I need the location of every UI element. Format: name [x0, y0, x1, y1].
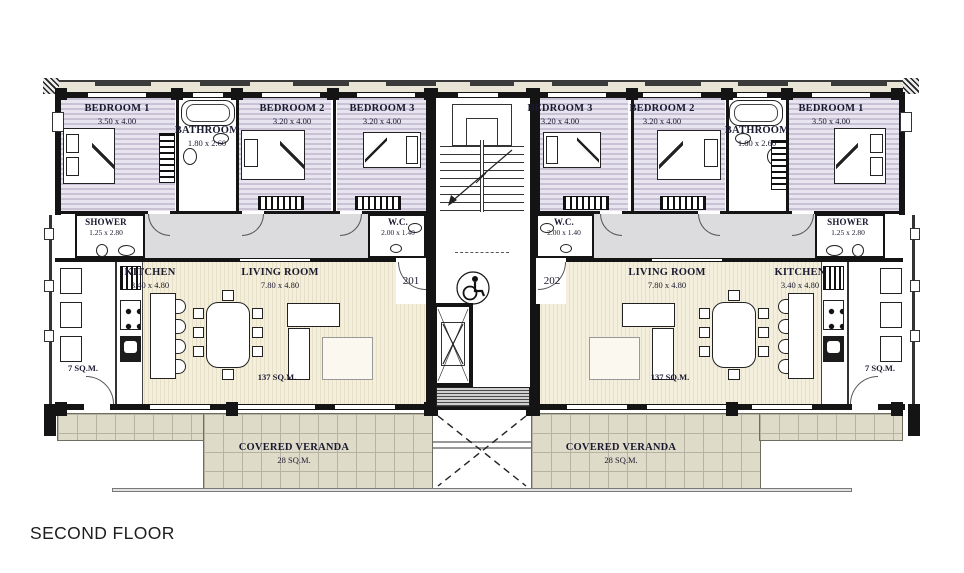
column	[726, 402, 738, 416]
door-number-202: 202	[544, 275, 561, 287]
stair-rail	[480, 140, 484, 212]
balcony-rail-left	[49, 215, 52, 404]
unit-area-left: 137 SQ.M.	[258, 372, 297, 382]
void-line	[433, 441, 531, 443]
room-label-bathroom-right: BATHROOM 1.80 x 2.60	[725, 125, 789, 148]
room-label-bedroom3-left: BEDROOM 3 3.20 x 4.00	[349, 103, 414, 126]
pillow	[406, 136, 418, 164]
room-label-wc-left: W.C. 2.00 x 1.40	[381, 217, 415, 237]
ac-unit	[880, 336, 902, 362]
room-dims: 3.40 x 4.80	[125, 280, 176, 290]
room-dims: 2.00 x 1.40	[547, 228, 581, 237]
sink	[826, 245, 843, 256]
room-name: LIVING ROOM	[241, 267, 318, 280]
room-name: SHOWER	[827, 217, 869, 228]
pillow	[704, 139, 718, 167]
chair	[252, 308, 263, 319]
wardrobe	[563, 196, 609, 210]
veranda-label-left: COVERED VERANDA 28 SQ.M.	[239, 442, 349, 465]
room-name: W.C.	[547, 217, 581, 228]
eaves-bar	[738, 82, 788, 86]
blanket-fold	[280, 131, 304, 179]
sink	[560, 244, 572, 253]
room-label-bedroom2-right: BEDROOM 2 3.20 x 4.00	[629, 103, 694, 126]
kitchen-island	[150, 293, 176, 379]
window	[262, 92, 320, 98]
veranda-name: COVERED VERANDA	[566, 442, 676, 455]
hatched-strip	[436, 387, 530, 407]
eaves-bar	[95, 82, 151, 86]
area-value: 7 SQ.M.	[68, 363, 98, 373]
area-value: 7 SQ.M.	[865, 363, 895, 373]
chair	[728, 369, 740, 380]
opening	[652, 258, 722, 262]
chair	[222, 369, 234, 380]
stove	[823, 300, 844, 330]
balcony-door-gap	[852, 404, 878, 410]
room-name: BEDROOM 2	[259, 103, 324, 116]
room-dims: 3.50 x 4.00	[84, 116, 149, 126]
wardrobe	[660, 196, 706, 210]
room-label-kitchen-right: KITCHEN 3.40 x 4.80	[775, 267, 826, 290]
floor-title: SECOND FLOOR	[30, 523, 175, 544]
window	[548, 92, 606, 98]
room-dims: 1.25 x 2.80	[85, 228, 127, 237]
unit-area-right: 137 SQ.M.	[651, 372, 690, 382]
kitchen-sink-basin	[827, 341, 840, 353]
chair	[728, 290, 740, 301]
pillow	[66, 157, 79, 176]
pillow	[870, 134, 883, 153]
kitchen-sink-basin	[124, 341, 137, 353]
sink	[183, 148, 197, 165]
column	[891, 402, 903, 416]
fridge	[823, 266, 844, 290]
blanket-fold	[577, 133, 599, 167]
pillow	[66, 134, 79, 153]
pillow	[546, 136, 558, 164]
room-label-bedroom1-right: BEDROOM 1 3.50 x 4.00	[798, 103, 863, 126]
chair	[222, 290, 234, 301]
window	[88, 92, 146, 98]
pillow	[870, 157, 883, 176]
room-name: BEDROOM 1	[798, 103, 863, 116]
veranda-strip-left	[57, 413, 205, 441]
room-dims: 7.80 x 4.80	[628, 280, 705, 290]
chair	[252, 327, 263, 338]
room-name: BATHROOM	[175, 125, 239, 138]
eaves-bar	[470, 82, 514, 86]
room-dims: 1.80 x 2.60	[175, 138, 239, 148]
room-dims: 3.20 x 4.00	[349, 116, 414, 126]
column	[55, 402, 67, 416]
ac-unit	[60, 268, 82, 294]
corner-column	[903, 78, 919, 94]
room-label-wc-right: W.C. 2.00 x 1.40	[547, 217, 581, 237]
toilet	[96, 244, 108, 257]
room-name: BEDROOM 2	[629, 103, 694, 116]
room-label-shower-right: SHOWER 1.25 x 2.80	[827, 217, 869, 237]
window	[335, 404, 395, 410]
room-name: BATHROOM	[725, 125, 789, 138]
room-dims: 3.50 x 4.00	[798, 116, 863, 126]
window	[752, 404, 812, 410]
room-label-bedroom1-left: BEDROOM 1 3.50 x 4.00	[84, 103, 149, 126]
bathtub-inner	[186, 104, 230, 122]
balcony-rail-right	[912, 215, 915, 404]
room-dims: 1.80 x 2.60	[725, 138, 789, 148]
rug	[322, 337, 373, 380]
rug	[589, 337, 640, 380]
window	[150, 404, 210, 410]
room-label-bedroom2-left: BEDROOM 2 3.20 x 4.00	[259, 103, 324, 126]
sliding-door	[235, 404, 315, 410]
stool	[778, 359, 788, 374]
ac-unit	[880, 268, 902, 294]
blanket-fold	[365, 133, 387, 167]
window	[900, 112, 912, 132]
ac-unit	[60, 336, 82, 362]
ac-unit	[60, 302, 82, 328]
wardrobe	[355, 196, 401, 210]
eaves-bar	[645, 82, 701, 86]
chair	[252, 346, 263, 357]
chair	[193, 308, 204, 319]
room-dims: 3.40 x 4.80	[775, 280, 826, 290]
plot-baseline	[112, 488, 852, 492]
stool	[778, 299, 788, 314]
window	[357, 92, 415, 98]
sink	[118, 245, 135, 256]
wall	[176, 92, 179, 214]
column	[226, 402, 238, 416]
chair	[758, 346, 769, 357]
sofa	[287, 303, 340, 327]
chair	[699, 327, 710, 338]
room-name: BEDROOM 3	[527, 103, 592, 116]
wall	[236, 92, 239, 214]
area-value: 137 SQ.M.	[258, 372, 297, 382]
eaves-bar	[293, 82, 349, 86]
blanket-fold	[836, 129, 858, 183]
blanket-fold	[659, 131, 683, 179]
door-number-201: 201	[403, 275, 420, 287]
eaves-bar	[831, 82, 887, 86]
wardrobe	[159, 133, 175, 183]
rail-post	[44, 330, 54, 342]
balcony-area-right: 7 SQ.M.	[865, 363, 895, 373]
room-name: BEDROOM 3	[349, 103, 414, 116]
ac-unit	[880, 302, 902, 328]
eaves-bar	[200, 82, 250, 86]
sliding-door	[647, 404, 727, 410]
chair	[193, 346, 204, 357]
opening	[240, 258, 310, 262]
rail-post	[910, 228, 920, 240]
room-dims: 1.25 x 2.80	[827, 228, 869, 237]
dining-table	[206, 302, 250, 368]
room-label-kitchen-left: KITCHEN 3.40 x 4.80	[125, 267, 176, 290]
elevator-cab	[441, 322, 465, 366]
room-name: SHOWER	[85, 217, 127, 228]
veranda-area: 28 SQ.M.	[566, 455, 676, 465]
room-name: KITCHEN	[125, 267, 176, 280]
balcony-door-gap	[84, 404, 110, 410]
rail-post	[44, 228, 54, 240]
chair	[758, 327, 769, 338]
room-label-shower-left: SHOWER 1.25 x 2.80	[85, 217, 127, 237]
room-name: KITCHEN	[775, 267, 826, 280]
floor-plan: BEDROOM 1 3.50 x 4.00 BATHROOM 1.80 x 2.…	[0, 0, 964, 573]
veranda-name: COVERED VERANDA	[239, 442, 349, 455]
area-value: 137 SQ.M.	[651, 372, 690, 382]
room-dims: 2.00 x 1.40	[381, 228, 415, 237]
rail-post	[910, 330, 920, 342]
veranda-strip-right	[759, 413, 903, 441]
chair	[699, 346, 710, 357]
landing-dashed-line	[455, 252, 509, 253]
window	[643, 92, 701, 98]
room-label-living-right: LIVING ROOM 7.80 x 4.80	[628, 267, 705, 290]
corner-block	[908, 404, 920, 436]
room-name: BEDROOM 1	[84, 103, 149, 116]
bathtub-inner	[734, 104, 778, 122]
exterior-wall-right	[899, 92, 905, 215]
window	[812, 92, 870, 98]
exterior-wall-left	[55, 92, 61, 215]
sofa	[622, 303, 675, 327]
chair	[758, 308, 769, 319]
stove	[120, 300, 141, 330]
balcony-area-left: 7 SQ.M.	[68, 363, 98, 373]
veranda-area: 28 SQ.M.	[239, 455, 349, 465]
eaves-bar	[386, 82, 436, 86]
sink	[390, 244, 402, 253]
window	[737, 92, 767, 98]
room-label-living-left: LIVING ROOM 7.80 x 4.80	[241, 267, 318, 290]
room-name: LIVING ROOM	[628, 267, 705, 280]
chair	[699, 308, 710, 319]
room-dims: 7.80 x 4.80	[241, 280, 318, 290]
void-open-below	[435, 413, 529, 489]
rail-post	[910, 280, 920, 292]
toilet	[852, 244, 864, 257]
window	[193, 92, 223, 98]
wall	[847, 262, 849, 404]
room-label-bathroom-left: BATHROOM 1.80 x 2.60	[175, 125, 239, 148]
rail-post	[44, 280, 54, 292]
chair	[193, 327, 204, 338]
room-dims: 3.20 x 4.00	[629, 116, 694, 126]
dining-table	[712, 302, 756, 368]
room-dims: 3.20 x 4.00	[527, 116, 592, 126]
wall	[333, 92, 336, 214]
stool	[778, 319, 788, 334]
stool	[778, 339, 788, 354]
eaves-bar	[552, 82, 608, 86]
room-label-bedroom3-right: BEDROOM 3 3.20 x 4.00	[527, 103, 592, 126]
room-name: W.C.	[381, 217, 415, 228]
blanket-fold	[92, 129, 114, 183]
wardrobe	[258, 196, 304, 210]
window	[567, 404, 627, 410]
void-line	[433, 447, 531, 449]
kitchen-island	[788, 293, 814, 379]
veranda-label-right: COVERED VERANDA 28 SQ.M.	[566, 442, 676, 465]
room-dims: 3.20 x 4.00	[259, 116, 324, 126]
pillow	[244, 139, 258, 167]
